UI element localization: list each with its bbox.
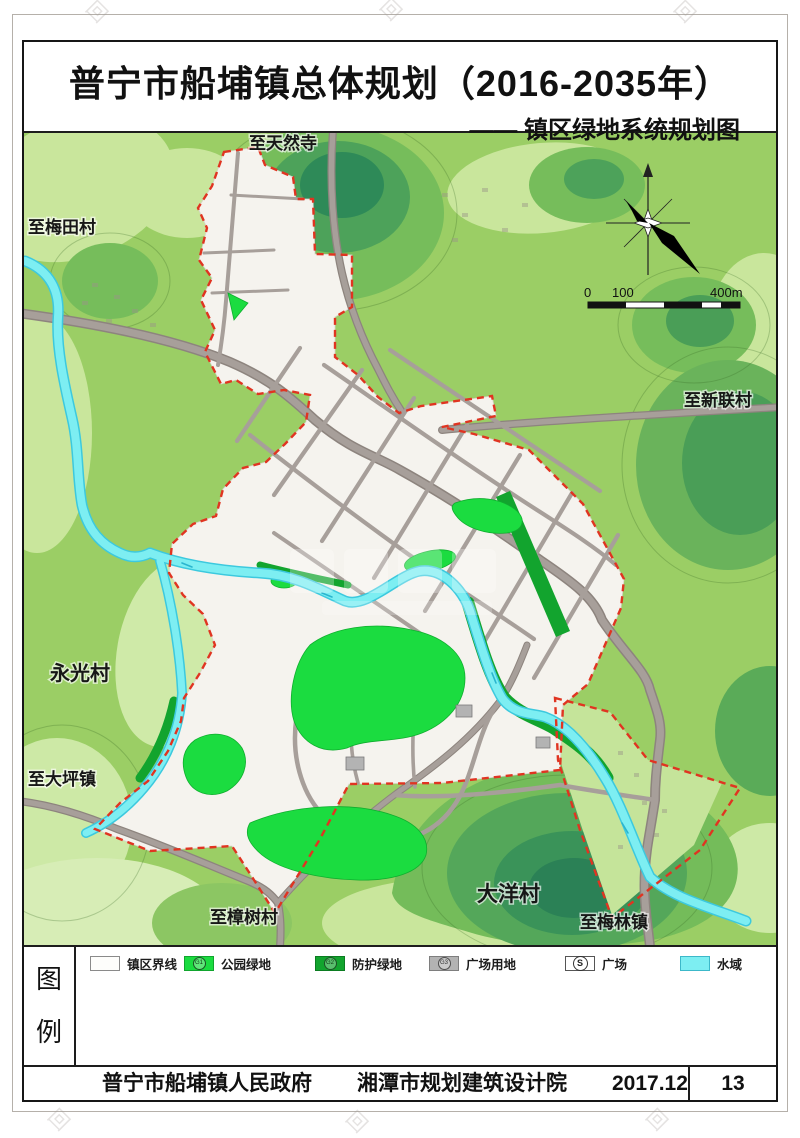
footer-institute: 湘潭市规划建筑设计院 <box>357 1067 567 1102</box>
legend-label: 水域 <box>717 954 742 973</box>
water-swatch <box>680 956 710 971</box>
legend-heading-char-2: 例 <box>36 1012 62 1049</box>
legend-item-protective: G2 防护绿地 <box>315 954 402 973</box>
label-meilin-town: 至梅林镇 <box>580 912 648 932</box>
legend-label: 公园绿地 <box>221 954 271 973</box>
scale-tick-100: 100 <box>612 285 634 300</box>
label-zhangshu-village: 至樟树村 <box>210 907 278 927</box>
legend-label: 广场用地 <box>466 954 516 973</box>
page-number: 13 <box>688 1067 776 1102</box>
footer: 普宁市船埔镇人民政府 湘潭市规划建筑设计院 2017.12 13 <box>24 1065 776 1100</box>
map-area: 0 100 400m 至天然寺 至梅田村 至新联村 永光村 至大坪镇 至樟树村 … <box>22 133 778 945</box>
page-subtitle: —— 镇区绿地系统规划图 <box>24 110 776 145</box>
legend-item-boundary: 镇区界线 <box>90 954 177 973</box>
plaza-code: G3 <box>438 957 451 970</box>
label-daping-town: 至大坪镇 <box>28 769 96 789</box>
legend-item-plaza-land: G3 广场用地 <box>429 954 516 973</box>
title-band: 普宁市船埔镇总体规划（2016-2035年） —— 镇区绿地系统规划图 <box>24 42 776 133</box>
label-meitian-village: 至梅田村 <box>28 217 96 237</box>
legend-label: 防护绿地 <box>352 954 402 973</box>
scale-tick-0: 0 <box>584 285 591 300</box>
label-dayang-village: 大洋村 <box>477 882 540 906</box>
planning-map-page: { "page": { "title": "普宁市船埔镇总体规划（2016-20… <box>0 0 800 1130</box>
town-plan-map: 0 100 400m 至天然寺 至梅田村 至新联村 永光村 至大坪镇 至樟树村 … <box>22 133 778 945</box>
legend-label: 广场 <box>602 954 627 973</box>
square-swatch: S <box>565 956 595 971</box>
page-title: 普宁市船埔镇总体规划（2016-2035年） <box>24 55 776 107</box>
scale-tick-400: 400m <box>710 285 743 300</box>
label-yongguang-village: 永光村 <box>49 661 110 685</box>
legend-label: 镇区界线 <box>127 954 177 973</box>
legend: 图 例 镇区界线 G1 公园绿地 G2 防护绿地 G3 广场用地 S 广场 水域 <box>24 945 776 1065</box>
legend-item-square: S 广场 <box>565 954 627 973</box>
footer-date: 2017.12 <box>612 1067 688 1102</box>
legend-item-park: G1 公园绿地 <box>184 954 271 973</box>
plaza-swatch: G3 <box>429 956 459 971</box>
boundary-swatch <box>90 956 120 971</box>
protective-swatch: G2 <box>315 956 345 971</box>
footer-government: 普宁市船埔镇人民政府 <box>102 1067 312 1102</box>
label-xinlian-village: 至新联村 <box>684 390 752 410</box>
legend-item-water: 水域 <box>680 954 742 973</box>
legend-heading-char-1: 图 <box>36 959 62 996</box>
park-swatch: G1 <box>184 956 214 971</box>
protective-code: G2 <box>324 957 337 970</box>
square-code: S <box>573 956 588 971</box>
park-code: G1 <box>193 957 206 970</box>
legend-heading: 图 例 <box>24 947 76 1065</box>
